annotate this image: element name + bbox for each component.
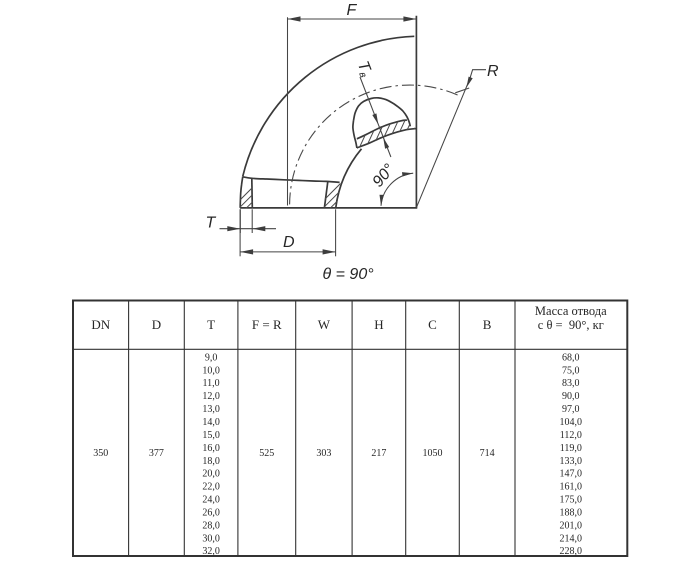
svg-text:228,0: 228,0 <box>560 546 583 557</box>
svg-text:16,0: 16,0 <box>202 443 220 454</box>
svg-text:10,0: 10,0 <box>202 365 220 376</box>
svg-text:H: H <box>374 317 383 332</box>
svg-text:θ = 90°: θ = 90° <box>323 266 375 283</box>
svg-text:147,0: 147,0 <box>560 469 583 480</box>
svg-text:Масса отвода: Масса отвода <box>535 304 607 318</box>
svg-text:20,0: 20,0 <box>202 469 220 480</box>
svg-text:714: 714 <box>480 448 495 459</box>
svg-text:90,0: 90,0 <box>562 391 580 402</box>
svg-text:161,0: 161,0 <box>560 482 583 493</box>
svg-text:14,0: 14,0 <box>202 417 220 428</box>
svg-text:104,0: 104,0 <box>560 417 583 428</box>
svg-text:133,0: 133,0 <box>560 456 583 467</box>
svg-text:26,0: 26,0 <box>202 507 220 518</box>
svg-text:90°: 90° <box>370 161 399 191</box>
svg-text:377: 377 <box>149 448 164 459</box>
svg-text:15,0: 15,0 <box>202 430 220 441</box>
svg-text:13,0: 13,0 <box>202 404 220 415</box>
svg-text:24,0: 24,0 <box>202 495 220 506</box>
svg-text:119,0: 119,0 <box>560 443 582 454</box>
svg-text:350: 350 <box>93 448 108 459</box>
svg-text:с θ = 90°, кг: с θ = 90°, кг <box>538 318 604 332</box>
svg-text:214,0: 214,0 <box>560 533 583 544</box>
svg-text:75,0: 75,0 <box>562 365 580 376</box>
svg-text:Tв: Tв <box>353 59 375 79</box>
svg-text:F: F <box>347 2 358 19</box>
svg-text:83,0: 83,0 <box>562 378 580 389</box>
svg-text:F = R: F = R <box>252 317 282 332</box>
svg-text:D: D <box>283 234 295 251</box>
svg-text:303: 303 <box>316 448 331 459</box>
svg-text:525: 525 <box>259 448 274 459</box>
svg-text:R: R <box>487 63 499 80</box>
svg-text:68,0: 68,0 <box>562 352 580 363</box>
svg-text:DN: DN <box>91 317 110 332</box>
svg-text:175,0: 175,0 <box>560 495 583 506</box>
svg-text:W: W <box>318 317 331 332</box>
svg-text:30,0: 30,0 <box>202 533 220 544</box>
svg-text:D: D <box>152 317 161 332</box>
svg-text:112,0: 112,0 <box>560 430 582 441</box>
svg-text:32,0: 32,0 <box>202 546 220 557</box>
svg-text:22,0: 22,0 <box>202 482 220 493</box>
svg-text:9,0: 9,0 <box>205 352 218 363</box>
svg-text:11,0: 11,0 <box>203 378 220 389</box>
svg-text:T: T <box>206 215 217 232</box>
svg-text:B: B <box>483 317 492 332</box>
svg-text:28,0: 28,0 <box>202 520 220 531</box>
svg-text:12,0: 12,0 <box>202 391 220 402</box>
svg-text:97,0: 97,0 <box>562 404 580 415</box>
svg-text:1050: 1050 <box>423 448 443 459</box>
svg-text:18,0: 18,0 <box>202 456 220 467</box>
svg-text:188,0: 188,0 <box>560 507 583 518</box>
svg-text:201,0: 201,0 <box>560 520 583 531</box>
svg-text:T: T <box>207 317 215 332</box>
svg-text:C: C <box>428 317 437 332</box>
svg-text:217: 217 <box>371 448 386 459</box>
